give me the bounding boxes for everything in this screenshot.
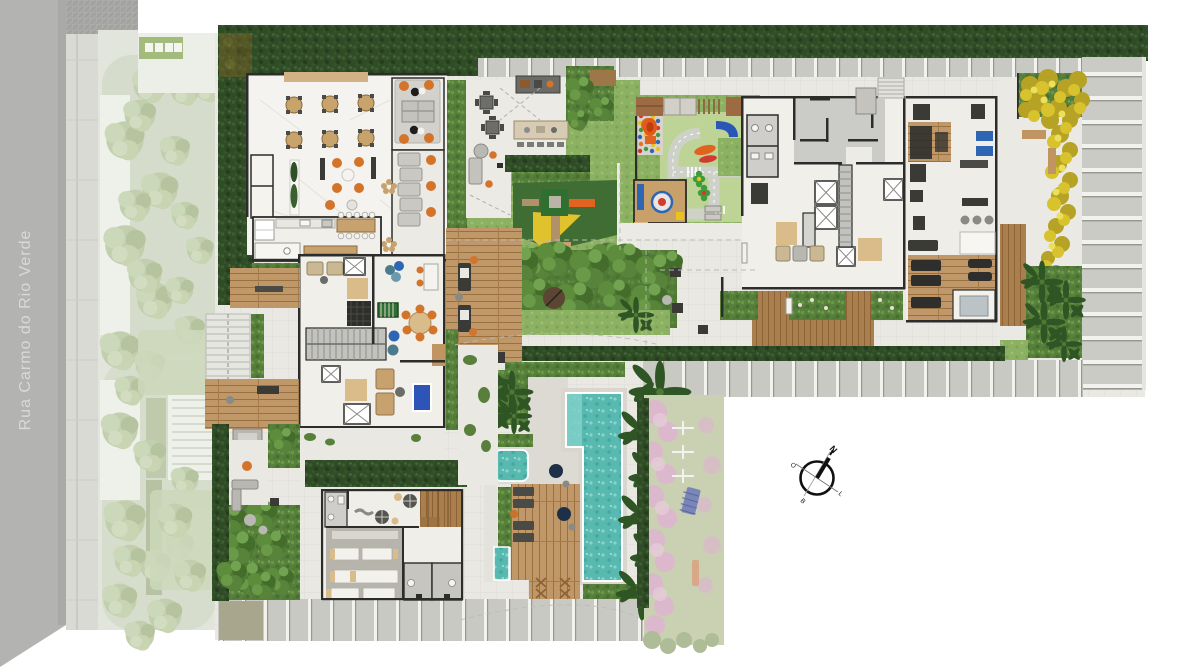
svg-text:Rua Carmo do Rio Verde: Rua Carmo do Rio Verde <box>17 230 34 431</box>
